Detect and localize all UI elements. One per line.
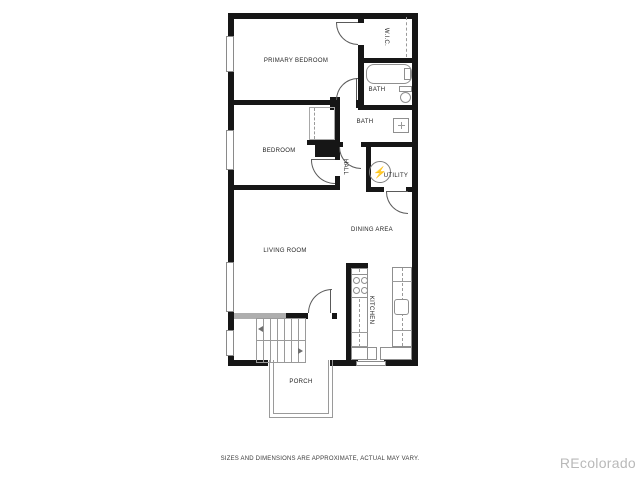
wall bbox=[358, 13, 364, 23]
stair-arrow bbox=[298, 348, 303, 354]
porch-outline bbox=[273, 360, 329, 414]
door-leaf bbox=[336, 22, 358, 23]
floorplan-page: ⚡ PRIMARY BEDROOM W.I.C. BATH BATH BEDRO… bbox=[0, 0, 640, 480]
closet-rod bbox=[406, 17, 407, 57]
room-label-porch: PORCH bbox=[271, 379, 331, 386]
room-label-bedroom: BEDROOM bbox=[239, 148, 319, 155]
wall bbox=[332, 313, 337, 319]
door-arc bbox=[311, 160, 335, 184]
wall bbox=[356, 100, 364, 108]
room-label-utility: UTILITY bbox=[378, 173, 414, 180]
stair-tread bbox=[298, 318, 299, 340]
door-arc bbox=[336, 23, 358, 45]
kitchen-cabinet bbox=[351, 347, 377, 360]
stair-tread bbox=[263, 318, 264, 340]
cabinet-divider bbox=[392, 330, 412, 331]
faucet-icon bbox=[404, 68, 411, 80]
room-label-kitchen: KITCHEN bbox=[366, 280, 376, 340]
stove-burner-icon bbox=[353, 277, 360, 284]
room-label-bath-ensuite: BATH bbox=[364, 87, 390, 94]
room-label-dining-area: DINING AREA bbox=[332, 227, 412, 234]
room-label-bath-main: BATH bbox=[350, 119, 380, 126]
closet bbox=[309, 107, 335, 140]
window bbox=[226, 130, 234, 170]
door-arc bbox=[308, 289, 332, 313]
closet-rod bbox=[314, 108, 315, 139]
door-leaf bbox=[311, 159, 335, 160]
wall bbox=[234, 185, 335, 190]
wall bbox=[384, 360, 412, 366]
door-leaf bbox=[386, 191, 408, 192]
door-leaf bbox=[356, 78, 357, 100]
window bbox=[356, 361, 386, 366]
door-leaf bbox=[330, 289, 331, 313]
kitchen-sink-icon bbox=[394, 299, 409, 315]
room-label-wic: W.I.C. bbox=[381, 7, 391, 67]
stove-burner-icon bbox=[353, 287, 360, 294]
wall bbox=[330, 360, 358, 366]
disclaimer-text: SIZES AND DIMENSIONS ARE APPROXIMATE, AC… bbox=[160, 456, 480, 462]
sink-icon bbox=[401, 122, 402, 129]
wall bbox=[366, 187, 384, 192]
stair-tread bbox=[291, 318, 292, 340]
stair-tread bbox=[263, 340, 264, 363]
cabinet-divider bbox=[392, 281, 412, 282]
kitchen-cabinet bbox=[380, 347, 412, 360]
wall bbox=[358, 105, 412, 110]
stair-tread bbox=[284, 318, 285, 340]
room-label-living-room: LIVING ROOM bbox=[245, 248, 325, 255]
wall bbox=[412, 13, 418, 366]
stair-tread bbox=[277, 318, 278, 340]
room-label-hall: HALL bbox=[340, 137, 350, 197]
toilet-icon bbox=[400, 92, 411, 103]
door-arc bbox=[386, 192, 408, 214]
wall bbox=[234, 100, 330, 105]
window bbox=[226, 330, 234, 356]
door-arc bbox=[336, 78, 358, 100]
stair-tread bbox=[270, 318, 271, 340]
window bbox=[226, 262, 234, 312]
watermark-recolorado: REcolorado bbox=[560, 455, 636, 471]
stair-arrow bbox=[258, 326, 263, 332]
room-label-primary-bedroom: PRIMARY BEDROOM bbox=[246, 58, 346, 65]
window bbox=[226, 36, 234, 72]
